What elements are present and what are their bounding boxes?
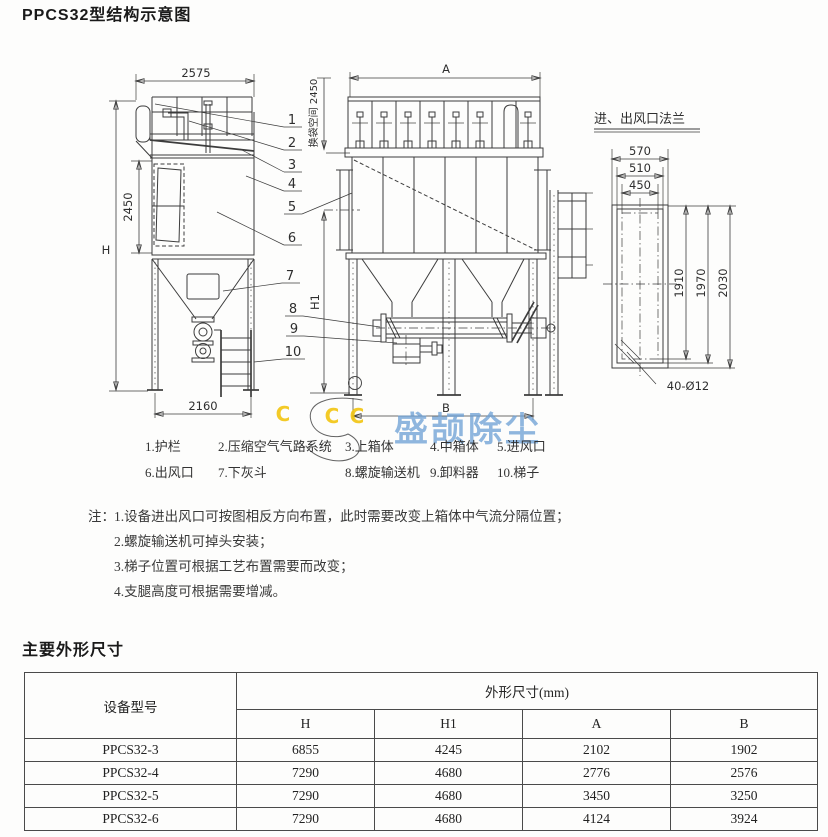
table-row: PPCS32-6 7290 4680 4124 3924 [25, 808, 818, 831]
cell-model: PPCS32-5 [25, 785, 237, 808]
front-left-flange [324, 170, 360, 250]
dim-flange-h1: 1910 [672, 268, 686, 297]
dim-side-top-width: 2575 [181, 66, 210, 80]
side-legs [147, 259, 259, 390]
cell-model: PPCS32-4 [25, 762, 237, 785]
cell-h: 6855 [237, 739, 375, 762]
dimensions-table: 设备型号 外形尺寸(mm) H H1 A B PPCS32-3 6855 424… [24, 672, 818, 831]
cell-h: 7290 [237, 762, 375, 785]
note-item-3: 3.梯子位置可根据工艺布置需要而改变； [114, 554, 354, 579]
cell-b: 3924 [671, 808, 818, 831]
flange-body [603, 198, 677, 376]
svg-text:9: 9 [290, 322, 298, 337]
callout-9: 9 [286, 322, 397, 343]
dim-flange-h3: 2030 [716, 268, 730, 297]
note-item-2: 2.螺旋输送机可掉头安装； [114, 529, 273, 554]
table-row: PPCS32-3 6855 4245 2102 1902 [25, 739, 818, 762]
cell-b: 2576 [671, 762, 818, 785]
dim-front-top-width: A [442, 62, 450, 76]
table-header-model: 设备型号 [25, 673, 237, 739]
watermark-letter-1: C [276, 402, 291, 426]
legend-item-8: 8.螺旋输送机 [345, 462, 430, 481]
watermark-red-dot [349, 377, 362, 390]
svg-text:5: 5 [288, 200, 296, 215]
table-subheader-h1: H1 [375, 710, 523, 739]
cell-a: 2776 [523, 762, 671, 785]
dim-bag-space: 换袋空间 2450 [307, 79, 320, 148]
callouts: 1 2 3 4 5 [155, 104, 397, 362]
legend-item-10: 10.梯子 [497, 462, 587, 481]
parts-legend: 1.护栏 2.压缩空气气路系统 3.上箱体 4.中箱体 5.进风口 6.出风口 … [145, 436, 587, 481]
dim-flange-w2: 510 [629, 161, 651, 175]
cell-h1: 4680 [375, 808, 523, 831]
cell-a: 3450 [523, 785, 671, 808]
discharge-valve [393, 335, 442, 366]
callout-7: 7 [223, 269, 300, 291]
legend-item-9: 9.卸料器 [430, 462, 497, 481]
notes-prefix: 注： [88, 504, 114, 529]
document-page: PPCS32型结构示意图 2575 H 2450 [0, 0, 828, 837]
cell-h1: 4245 [375, 739, 523, 762]
table-row: PPCS32-4 7290 4680 2776 2576 [25, 762, 818, 785]
cell-model: PPCS32-3 [25, 739, 237, 762]
table-subheader-h: H [237, 710, 375, 739]
callout-6: 6 [217, 212, 302, 246]
dim-bolt-holes: 40-Ø12 [667, 379, 709, 393]
cell-h: 7290 [237, 808, 375, 831]
dim-front-h1: H1 [308, 294, 322, 310]
cell-h1: 4680 [375, 785, 523, 808]
notes-block: 注： 1.设备进出风口可按图相反方向布置，此时需要改变上箱体中气流分隔位置； 2… [88, 504, 768, 604]
dim-side-base-width: 2160 [188, 399, 217, 413]
ladder [214, 330, 251, 397]
callout-3: 3 [240, 149, 302, 173]
note-item-4: 4.支腿高度可根据需要增减。 [114, 579, 286, 604]
note-item-1: 1.设备进出风口可按图相反方向布置，此时需要改变上箱体中气流分隔位置； [114, 504, 570, 529]
side-view: 2575 H 2450 [102, 66, 259, 418]
flange-view: 进、出风口法兰 570 510 450 [594, 112, 736, 393]
cell-model: PPCS32-6 [25, 808, 237, 831]
side-mid-casing [152, 158, 254, 255]
dim-side-body-height: 2450 [121, 192, 135, 221]
svg-text:3: 3 [288, 158, 296, 173]
front-right-flange [534, 170, 593, 395]
callout-8: 8 [285, 302, 380, 327]
cell-h1: 4680 [375, 762, 523, 785]
callout-10: 10 [254, 345, 305, 362]
svg-text:10: 10 [285, 345, 302, 360]
front-hoppers [346, 253, 546, 317]
legend-item-7: 7.下灰斗 [218, 462, 345, 481]
dim-flange-h2: 1970 [694, 268, 708, 297]
table-row: PPCS32-5 7290 4680 3450 3250 [25, 785, 818, 808]
svg-text:7: 7 [286, 269, 294, 284]
dim-flange-w3: 450 [629, 178, 651, 192]
legend-item-5: 5.进风口 [497, 436, 587, 455]
callout-5: 5 [284, 193, 352, 215]
svg-text:2: 2 [288, 136, 296, 151]
front-view: A 换袋空间 2450 [307, 62, 593, 420]
dim-side-height: H [102, 243, 111, 257]
dim-flange-w1: 570 [629, 144, 651, 158]
watermark-letter-3: C [350, 404, 365, 428]
cell-h: 7290 [237, 785, 375, 808]
dimensions-section-title: 主要外形尺寸 [22, 641, 124, 660]
structure-diagram: 2575 H 2450 [0, 0, 828, 470]
front-top-casing [345, 97, 543, 157]
svg-text:4: 4 [288, 177, 296, 192]
table-subheader-b: B [671, 710, 818, 739]
legend-item-4: 4.中箱体 [430, 436, 497, 455]
cell-b: 1902 [671, 739, 818, 762]
hopper-access-door [187, 274, 219, 299]
table-header-dimensions: 外形尺寸(mm) [237, 673, 818, 710]
cell-a: 2102 [523, 739, 671, 762]
svg-text:6: 6 [288, 231, 296, 246]
front-legs [344, 259, 563, 395]
legend-item-1: 1.护栏 [145, 436, 218, 455]
front-mid-casing [352, 157, 538, 253]
legend-item-3: 3.上箱体 [345, 436, 430, 455]
cell-b: 3250 [671, 785, 818, 808]
svg-text:8: 8 [289, 302, 297, 317]
legend-item-2: 2.压缩空气气路系统 [218, 436, 345, 455]
side-rotary-valve [192, 317, 214, 362]
flange-view-title: 进、出风口法兰 [594, 112, 685, 127]
table-subheader-a: A [523, 710, 671, 739]
railing [136, 97, 254, 158]
bolt-holes-callout: 40-Ø12 [615, 340, 709, 393]
cell-a: 4124 [523, 808, 671, 831]
watermark-letter-2: C [325, 404, 340, 428]
legend-item-6: 6.出风口 [145, 462, 218, 481]
svg-text:1: 1 [288, 113, 296, 128]
